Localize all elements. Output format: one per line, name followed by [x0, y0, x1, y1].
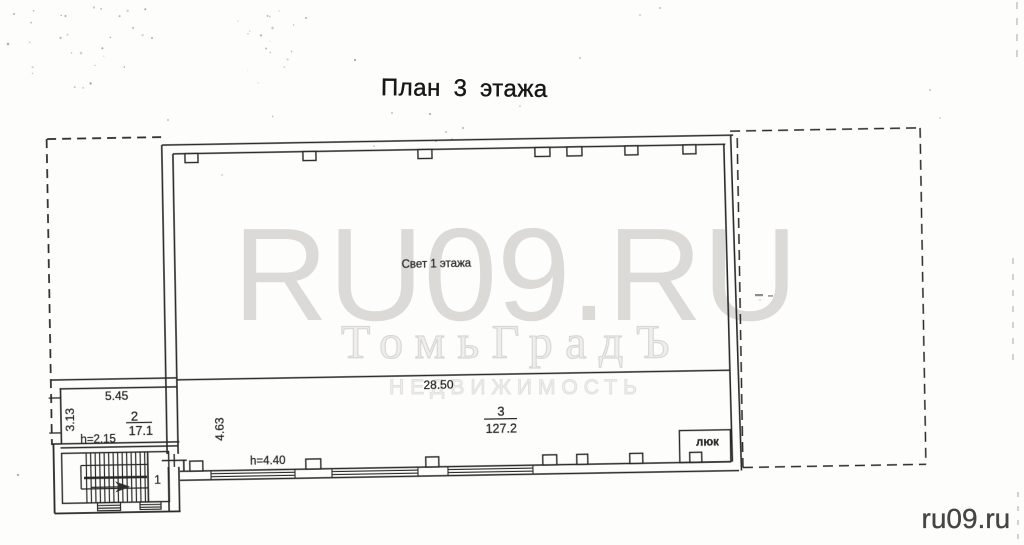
- svg-text:ТомьГрадЪ: ТомьГрадЪ: [341, 316, 682, 369]
- svg-text:17.1: 17.1: [128, 424, 153, 438]
- svg-text:3.13: 3.13: [63, 408, 77, 432]
- svg-text:h=2.15: h=2.15: [80, 434, 116, 447]
- svg-text:2: 2: [131, 409, 138, 424]
- svg-text:4.63: 4.63: [213, 417, 227, 441]
- svg-text:h=4.40: h=4.40: [250, 455, 286, 468]
- svg-text:люк: люк: [696, 436, 719, 448]
- svg-text:ru09.ru: ru09.ru: [922, 503, 1011, 534]
- svg-text:28.50: 28.50: [423, 378, 454, 393]
- svg-text:3: 3: [497, 403, 504, 418]
- svg-text:План 3 этажа: План 3 этажа: [381, 74, 548, 103]
- svg-text:1: 1: [154, 473, 161, 487]
- svg-text:5.45: 5.45: [105, 389, 129, 403]
- svg-text:127.2: 127.2: [485, 421, 517, 436]
- svg-text:Свет 1 этажа: Свет 1 этажа: [401, 258, 471, 271]
